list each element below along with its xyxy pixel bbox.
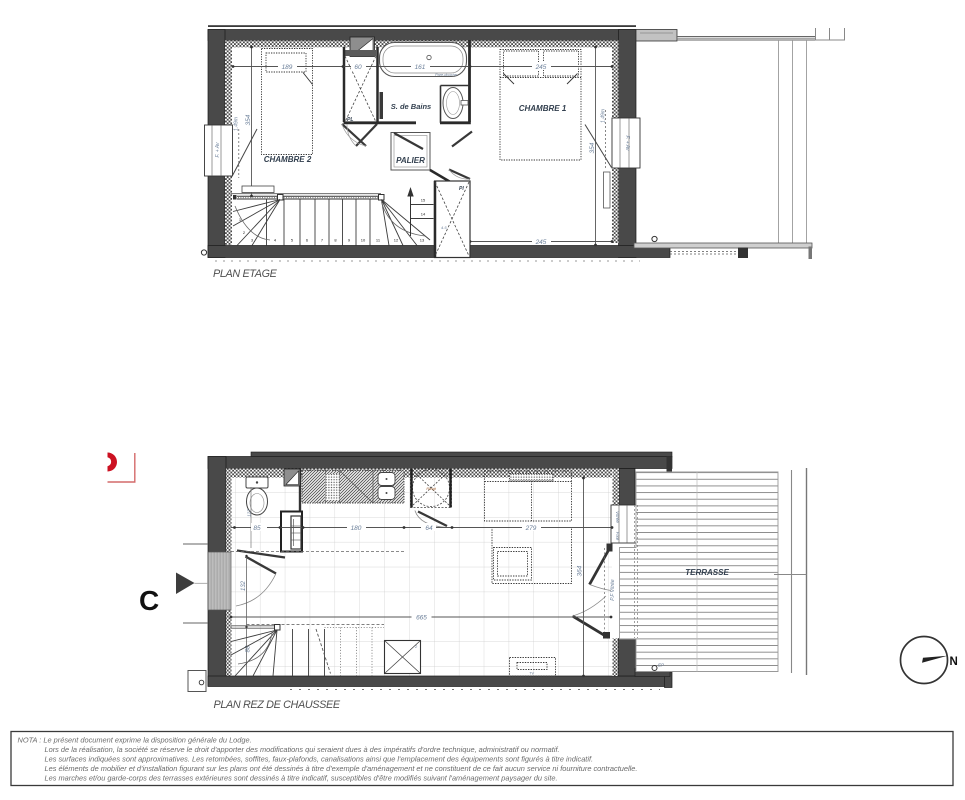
svg-text:N: N [950, 656, 958, 668]
svg-text:Pare-douche: Pare-douche [435, 73, 457, 77]
svg-text:64: 64 [425, 525, 433, 532]
svg-text:TERRASSE: TERRASSE [685, 568, 729, 577]
svg-text:180: 180 [351, 525, 362, 532]
svg-text:CHAMBRE 1: CHAMBRE 1 [519, 104, 567, 113]
svg-text:12: 12 [394, 238, 399, 243]
svg-text:PALIER: PALIER [396, 156, 425, 165]
svg-text:10: 10 [361, 238, 366, 243]
svg-text:364: 364 [577, 565, 584, 576]
svg-text:132: 132 [241, 580, 247, 591]
svg-text:P.F Vitrée: P.F Vitrée [610, 579, 616, 601]
svg-text:F. + Av: F. + Av [215, 142, 221, 158]
svg-text:665: 665 [416, 615, 427, 622]
svg-text:245: 245 [535, 64, 547, 71]
svg-text:13: 13 [420, 238, 425, 243]
svg-text:Rangt: Rangt [426, 487, 436, 491]
svg-text:PLAN ETAGE: PLAN ETAGE [213, 268, 278, 280]
svg-text:Les marches et/ou garde-corps: Les marches et/ou garde-corps des terras… [45, 774, 558, 783]
svg-text:F. + Av: F. + Av [624, 135, 630, 151]
svg-text:Fixe: Fixe [615, 532, 620, 541]
svg-text:Vitrée: Vitrée [615, 511, 620, 523]
svg-text:Lors de la réalisation, la soc: Lors de la réalisation, la société se ré… [45, 745, 560, 754]
svg-text:189: 189 [282, 64, 293, 71]
svg-text:88: 88 [246, 645, 252, 652]
svg-text:85: 85 [253, 525, 261, 532]
svg-text:354: 354 [245, 114, 252, 125]
svg-text:60: 60 [354, 64, 362, 71]
svg-text:127: 127 [247, 509, 252, 517]
svg-text:161: 161 [415, 64, 426, 71]
svg-text:PLAN REZ DE CHAUSSEE: PLAN REZ DE CHAUSSEE [214, 699, 341, 711]
svg-text:Pl: Pl [459, 186, 464, 192]
svg-text:279: 279 [525, 525, 537, 532]
svg-text:14: 14 [421, 212, 426, 217]
svg-text:TV: TV [529, 672, 534, 676]
svg-text:NOTA : Le présent document exp: NOTA : Le présent document exprime la di… [18, 736, 252, 745]
svg-text:C: C [139, 585, 159, 616]
svg-text:Les surfaces indiquées sont ap: Les surfaces indiquées sont approximativ… [45, 755, 594, 764]
svg-text:S. de Bains: S. de Bains [391, 102, 431, 111]
svg-text:4.5: 4.5 [441, 225, 447, 230]
svg-text:15: 15 [421, 198, 426, 203]
svg-text:Les éléments de mobilier et d': Les éléments de mobilier et d'installati… [45, 764, 638, 773]
svg-text:354: 354 [589, 142, 596, 153]
svg-text:CHAMBRE 2: CHAMBRE 2 [264, 155, 312, 164]
svg-text:EP: EP [658, 663, 664, 668]
svg-text:245: 245 [535, 239, 547, 246]
svg-text:1.49m: 1.49m [234, 117, 240, 131]
